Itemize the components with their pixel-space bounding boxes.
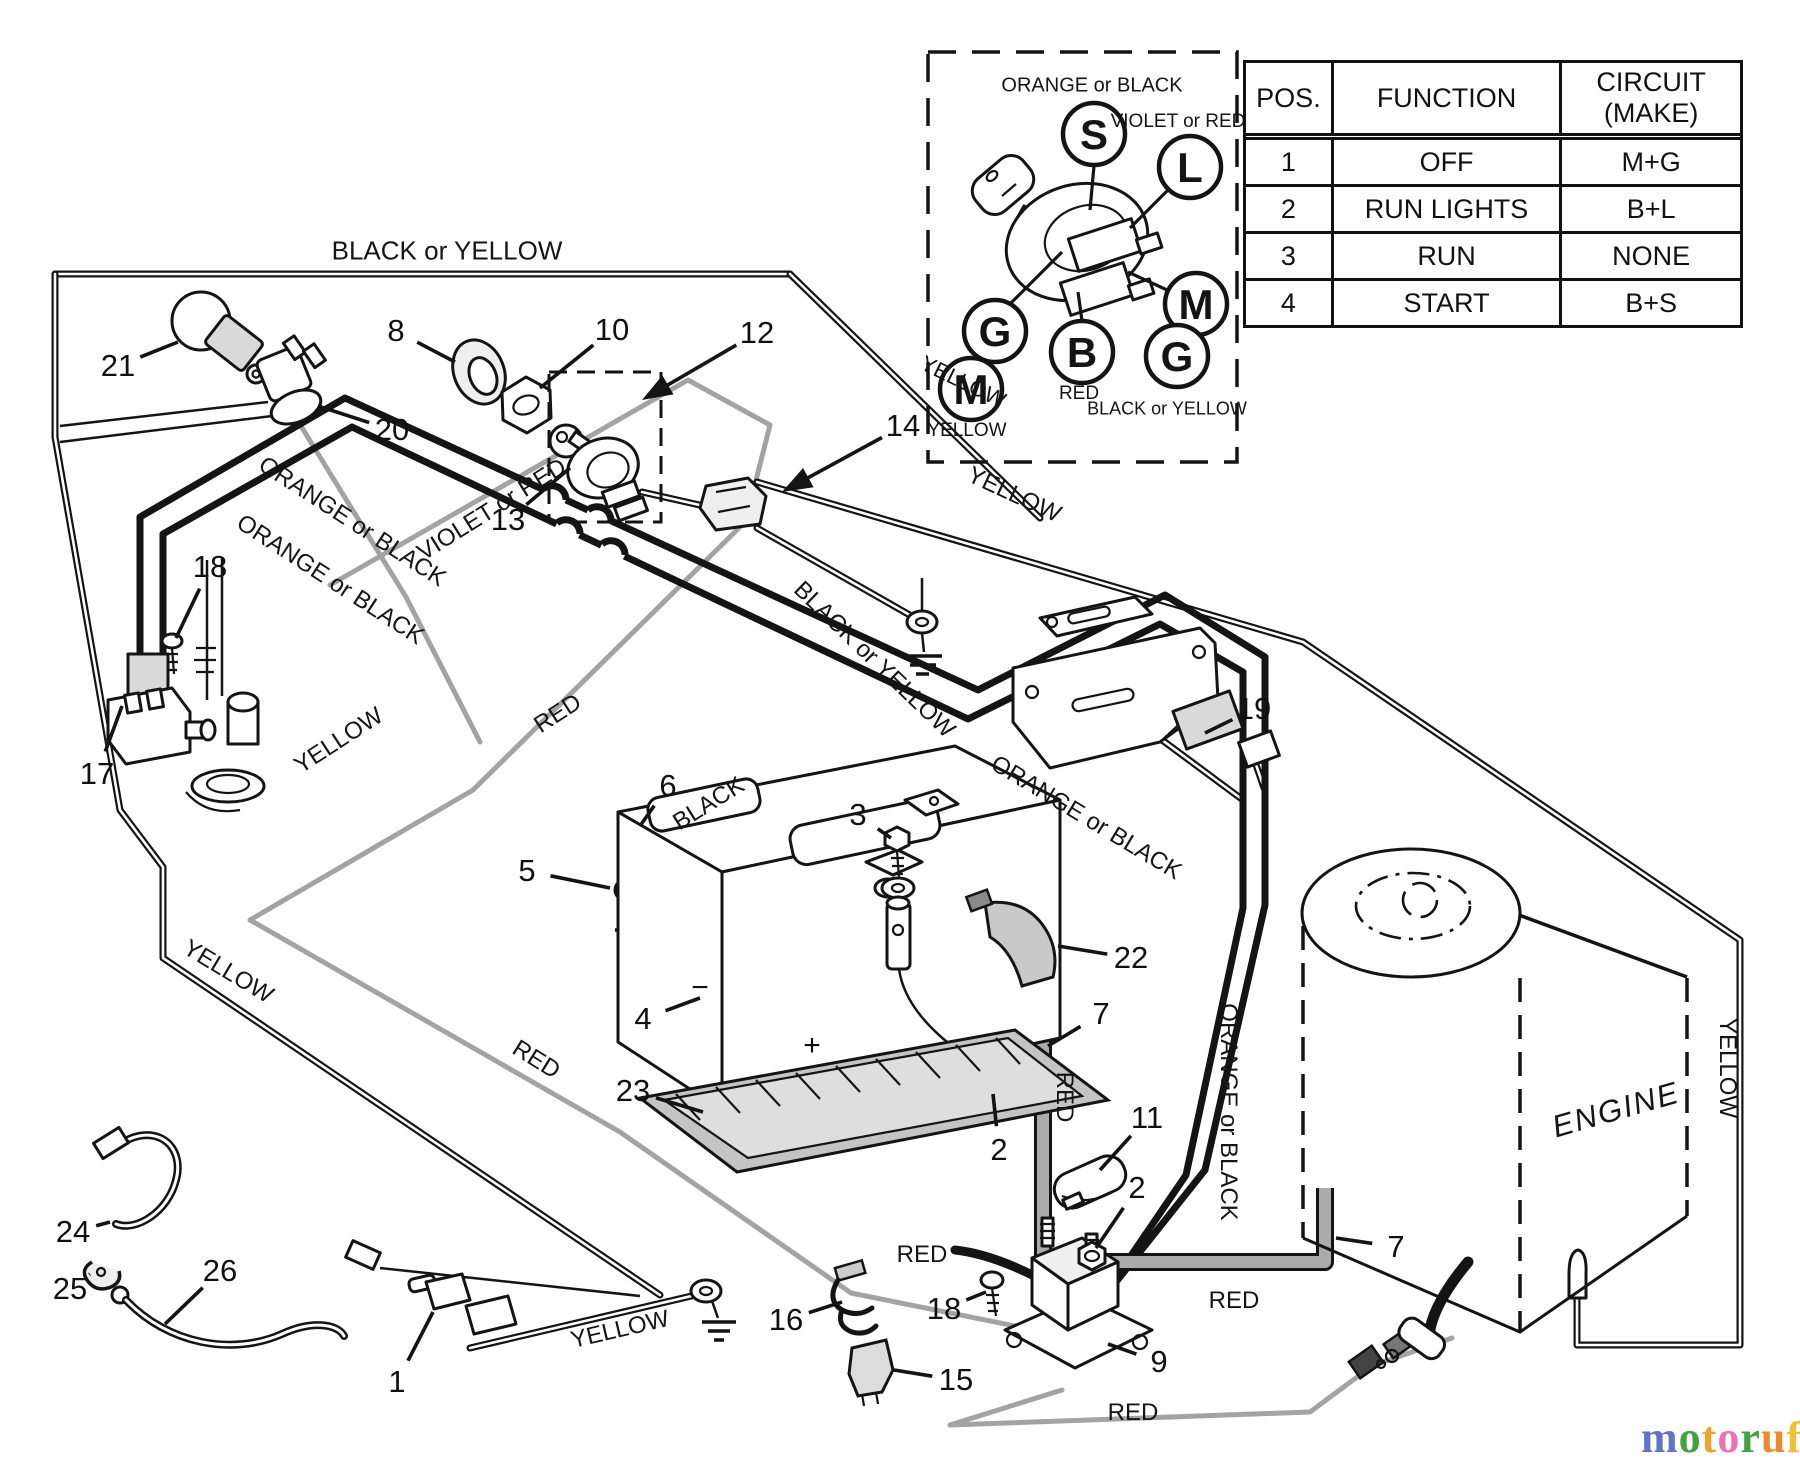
table-header-cell: POS. [1245,62,1333,135]
callout-number: 12 [740,315,774,351]
logo-letter: o [1679,1413,1702,1462]
callout-number: 11 [1131,1100,1163,1136]
seat-switch-assembly [108,558,264,811]
motoruf-logo: motoruf.de [1641,1412,1800,1463]
fuse-15 [849,1340,893,1406]
logo-letter: m [1641,1413,1679,1462]
callout-number: 7 [1387,1229,1404,1265]
wire-label: RED [1050,1072,1078,1123]
switch-position-table: POS.FUNCTIONCIRCUIT (MAKE) 1OFFM+G2RUN L… [1243,60,1743,328]
table-header-row: POS.FUNCTIONCIRCUIT (MAKE) [1245,62,1742,135]
callout-leader-line [551,876,610,888]
inset-wire-label: YELLOW [927,420,1006,442]
callout-leader-line [417,342,455,362]
table-header-cell: FUNCTION [1332,62,1560,135]
logo-letter: u [1761,1413,1786,1462]
cap-11 [1049,1151,1131,1214]
interlock-bracket-switch [904,578,1279,768]
terminal-letter: G [979,308,1012,355]
callout-leader-line [1336,1238,1372,1243]
terminal-letter: B [1067,329,1097,376]
callout-number: 7 [1092,996,1109,1032]
starter-solenoid [1005,1218,1152,1368]
callout-number: 9 [1150,1344,1167,1380]
callout-number: 8 [387,313,404,349]
callout-arrowhead [642,375,673,400]
table-row: 2RUN LIGHTSB+L [1245,186,1742,233]
clip-25 [84,1262,119,1289]
callout-leader-line [96,1222,110,1226]
ground-ring-bottom [691,1280,736,1340]
wiring-diagram-page: SLMGBGM BLACK or YELLOWORANGE or BLACKOR… [0,0,1800,1468]
callout-leader-line [540,345,593,388]
callout-leader-line [1096,1208,1123,1248]
callout-number: 2 [990,1132,1007,1168]
logo-letter: r [1740,1413,1761,1462]
battery-plus-sign: + [803,1029,821,1063]
terminal-letter: M [1179,281,1214,328]
table-row: 4STARTB+S [1245,280,1742,327]
inset-wire-label: VIOLET or RED [1111,111,1246,133]
table-cell: 4 [1245,280,1333,327]
wire-label: ORANGE or BLACK [1214,1003,1242,1220]
table-cell: RUN [1332,233,1560,280]
pos-table-body: 1OFFM+G2RUN LIGHTSB+L3RUNNONE4STARTB+S [1245,135,1742,327]
callout-arrowhead [782,468,814,492]
logo-letter: o [1717,1413,1740,1462]
callout-number: 1 [388,1364,405,1400]
wire-label: BLACK or YELLOW [332,236,563,267]
table-cell: RUN LIGHTS [1332,186,1560,233]
callout-leader-line [165,1288,203,1324]
callout-number: 24 [56,1214,90,1250]
table-header-cell: CIRCUIT (MAKE) [1561,62,1742,135]
callout-leader-line [1058,946,1107,954]
callout-leader-line [176,589,200,638]
callout-number: 21 [101,348,135,384]
terminal-letter: L [1177,144,1203,191]
callout-number: 3 [849,797,866,833]
callout-number: 17 [80,756,114,792]
callout-leader-line [894,1370,932,1376]
jumper-wire-24 [94,1127,178,1225]
table-cell: 3 [1245,233,1333,280]
callout-number: 25 [53,1271,87,1307]
table-cell: 1 [1245,139,1333,186]
callout-leader-line [408,1312,433,1361]
callout-leader-line [89,1274,90,1275]
lamp-bulb [172,292,265,383]
table-cell: NONE [1561,233,1742,280]
wire-label: RED [1108,1399,1159,1427]
table-cell: M+G [1561,139,1742,186]
inset-wire-label: BLACK or YELLOW [1087,399,1247,420]
nut-2b [1079,1242,1105,1270]
callout-number: 4 [634,1001,651,1037]
wire-label: RED [1209,1287,1260,1315]
callout-number: 15 [939,1362,973,1398]
callout-number: 5 [518,853,535,889]
table-cell: OFF [1332,139,1560,186]
motoruf-logo-letters: motoruf [1641,1413,1800,1462]
table-cell: 2 [1245,186,1333,233]
callout-number: 2 [1128,1170,1145,1206]
callout-number: 18 [927,1291,961,1327]
callout-number: 16 [769,1302,803,1338]
terminal-letter: G [1161,333,1194,380]
table-cell: B+S [1561,280,1742,327]
callout-leader-line [661,345,736,389]
callout-number: 6 [659,768,676,804]
callout-number: 20 [375,412,409,448]
table-cell: B+L [1561,186,1742,233]
table-row: 3RUNNONE [1245,233,1742,280]
callout-number: 13 [491,502,525,538]
harness-connector-14 [700,478,766,530]
callout-number: 14 [886,408,920,444]
callout-number: 22 [1114,940,1148,976]
callout-leader-line [801,437,882,481]
terminal-letter: S [1080,111,1108,158]
battery-minus-sign: − [691,971,709,1005]
ignition-switch-inset-drawing [966,149,1163,318]
logo-letter: t [1702,1413,1718,1462]
callout-number: 26 [203,1253,237,1289]
callout-number: 10 [595,312,629,348]
callout-number: 19 [1237,691,1271,727]
callout-leader-line [966,1292,986,1300]
jumper-wire-26 [112,1287,344,1345]
logo-letter: f [1786,1413,1800,1462]
inset-top-label: ORANGE or BLACK [1001,75,1182,98]
callout-number: 18 [193,549,227,585]
callout-leader-line [140,342,178,357]
table-row: 1OFFM+G [1245,139,1742,186]
table-cell: START [1332,280,1560,327]
wire-label: YELLOW [1713,1018,1741,1118]
callout-number: 23 [616,1073,650,1109]
wire-label: RED [897,1241,948,1269]
